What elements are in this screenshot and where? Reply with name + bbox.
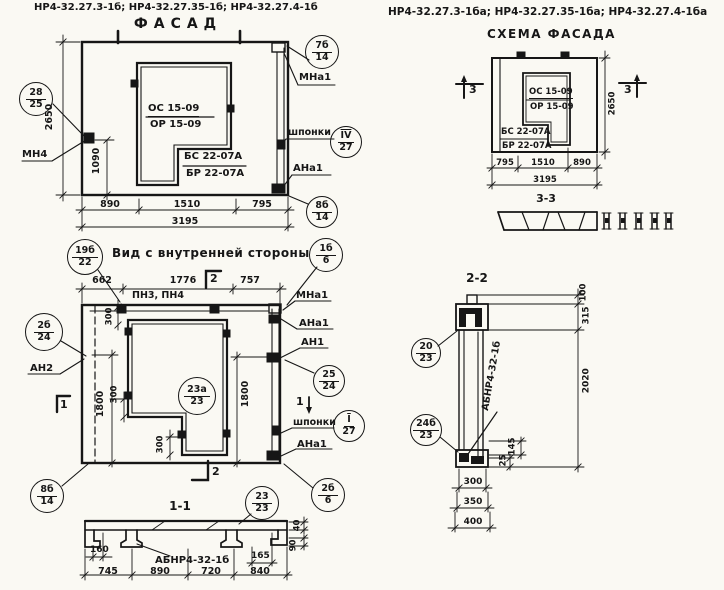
inner-dim-1800-left: 1800	[96, 386, 106, 422]
callout-inner-opening: 23а 23	[178, 377, 216, 415]
callout-inner-bottom-left: 8б 14	[30, 479, 64, 513]
inner-dim-300-mid: 300	[111, 376, 120, 412]
drawing-codes-left: НР4-32.27.3-1б; НР4-32.27.35-1б; НР4-32.…	[34, 3, 318, 14]
section-2-2-dimensions	[448, 289, 584, 532]
section-1-mark-left: 1	[60, 399, 68, 411]
callout-inner-left: 2б 24	[25, 313, 63, 351]
scheme-window-block-mark: ОС 15-09	[529, 88, 573, 99]
callout-s22-top: 20 23	[411, 338, 441, 368]
callout-section-1-1: 23 23	[245, 486, 279, 520]
section-3-3-title: 3-3	[532, 193, 560, 205]
s11-dim-840: 840	[246, 567, 274, 577]
s11-dim-745: 745	[94, 567, 122, 577]
s11-dim-890: 890	[146, 567, 174, 577]
callout-facade-keys: IV 27	[330, 126, 362, 158]
callout-inner-top-right: 1б 6	[309, 238, 343, 272]
callout-inner-bottom-right: 2б 6	[311, 478, 345, 512]
inner-dim-757: 757	[236, 276, 264, 286]
section-1-mark-right: 1	[296, 396, 304, 408]
s11-dim-160: 160	[90, 546, 109, 555]
scheme-sill-frame-mark: БР 22-07А	[502, 142, 551, 151]
section-3-3-profile	[498, 212, 673, 230]
s22-dim-25: 25	[500, 442, 509, 478]
callout-inner-right: 25 24	[313, 365, 345, 397]
scheme-title: СХЕМА ФАСАДА	[487, 28, 615, 41]
callout-facade-bottom-right: 8б 14	[306, 196, 338, 228]
s11-panel-mark: АБНР4-32-1б	[155, 556, 229, 567]
inner-dim-1776: 1776	[167, 276, 199, 286]
s22-dim-300: 300	[459, 478, 487, 487]
section-1-1-profile	[85, 514, 287, 556]
section-2-2-title: 2-2	[463, 272, 491, 285]
facade-dim-890: 890	[96, 200, 124, 210]
scheme-dim-890: 890	[570, 159, 594, 168]
inner-label-ana1-bottom: АНа1	[297, 440, 327, 451]
facade-window-frame-mark: ОР 15-09	[150, 120, 201, 131]
facade-label-mn4: МН4	[22, 150, 47, 161]
facade-dim-1510: 1510	[171, 200, 203, 210]
callout-inner-keys: I 27	[333, 410, 365, 442]
scheme-dim-1510: 1510	[529, 159, 557, 168]
facade-label-ana1: АНа1	[293, 164, 323, 175]
section-3-mark-left: 3	[469, 84, 477, 96]
scheme-dim-795: 795	[493, 159, 517, 168]
inner-label-an2: АН2	[30, 364, 53, 375]
callout-facade-top-right: 7б 14	[305, 35, 339, 69]
scheme-dim-total: 3195	[531, 176, 559, 185]
inner-label-pn: ПН3, ПН4	[132, 291, 184, 301]
scheme-dimensions	[487, 51, 610, 189]
inner-dim-300-top: 300	[106, 298, 115, 334]
facade-title: ФАСАД	[128, 17, 228, 32]
scheme-window-frame-mark: ОР 15-09	[530, 103, 574, 112]
s22-dim-145: 145	[509, 428, 518, 464]
scheme-sill-block-mark: БС 22-07А	[501, 128, 550, 137]
facade-dim-total: 3195	[169, 217, 201, 227]
inner-view-title: Вид с внутренней стороны	[112, 247, 310, 260]
facade-label-shponki: шпонки	[288, 128, 331, 138]
facade-dim-anchor: 1090	[92, 143, 102, 179]
callout-s22-bottom: 24б 23	[410, 414, 442, 446]
s22-dim-2020: 2020	[582, 363, 591, 399]
facade-label-mna1: МНа1	[299, 73, 331, 84]
s11-dim-165: 165	[251, 552, 270, 561]
s22-dim-400: 400	[459, 518, 487, 527]
facade-sill-block-mark: БС 22-07А	[184, 152, 242, 163]
inner-label-an1: АН1	[301, 338, 324, 349]
inner-dim-662: 662	[88, 276, 116, 286]
facade-dim-795: 795	[248, 200, 276, 210]
blueprint-canvas: НР4-32.27.3-1б; НР4-32.27.35-1б; НР4-32.…	[0, 0, 724, 590]
s22-dim-315: 315	[583, 297, 592, 333]
inner-label-shponki: шпонки	[293, 418, 336, 428]
callout-facade-left: 28 25	[19, 82, 53, 116]
s11-dim-90: 90	[290, 527, 299, 563]
inner-dim-300-bottom: 300	[157, 426, 166, 462]
inner-label-mna1: МНа1	[296, 291, 328, 302]
facade-sill-frame-mark: БР 22-07А	[186, 169, 244, 180]
section-1-1-title: 1-1	[162, 500, 198, 513]
drawing-codes-right: НР4-32.27.3-1ба; НР4-32.27.35-1ба; НР4-3…	[388, 7, 707, 18]
s22-dim-350: 350	[459, 498, 487, 507]
s11-dim-720: 720	[197, 567, 225, 577]
section-2-mark-bottom: 2	[212, 466, 220, 478]
scheme-dim-height: 2650	[609, 85, 618, 121]
inner-dim-1800-right: 1800	[241, 376, 251, 412]
section-2-mark-top: 2	[210, 273, 218, 285]
callout-inner-title: 19б 22	[67, 239, 103, 275]
inner-label-ana1-top: АНа1	[299, 319, 329, 330]
section-3-mark-right: 3	[624, 84, 632, 96]
facade-window-block-mark: ОС 15-09	[148, 104, 199, 117]
